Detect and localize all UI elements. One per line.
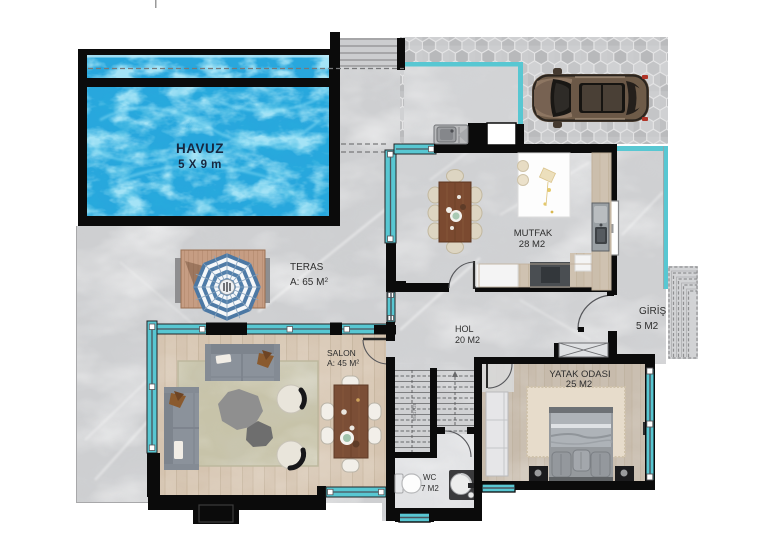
svg-text:MUTFAK: MUTFAK (514, 228, 553, 239)
svg-text:5 X 9 m: 5 X 9 m (178, 159, 222, 171)
svg-text:5 M2: 5 M2 (636, 321, 659, 332)
svg-text:HOL: HOL (455, 324, 474, 334)
svg-text:HAVUZ: HAVUZ (176, 141, 224, 156)
svg-text:20 M2: 20 M2 (455, 335, 480, 345)
svg-text:TERAS: TERAS (290, 262, 324, 273)
svg-text:WC: WC (423, 473, 437, 482)
svg-text:GİRİŞ: GİRİŞ (639, 304, 667, 317)
svg-text:25 M2: 25 M2 (566, 379, 592, 390)
svg-text:A: 45 M2: A: 45 M2 (327, 358, 359, 368)
svg-text:A: 65 M2: A: 65 M2 (290, 277, 328, 288)
svg-text:SALON: SALON (327, 348, 356, 358)
svg-text:7 M2: 7 M2 (421, 484, 439, 493)
svg-text:28 M2: 28 M2 (519, 239, 545, 250)
svg-text:15x17/28: 15x17/28 (412, 402, 417, 421)
